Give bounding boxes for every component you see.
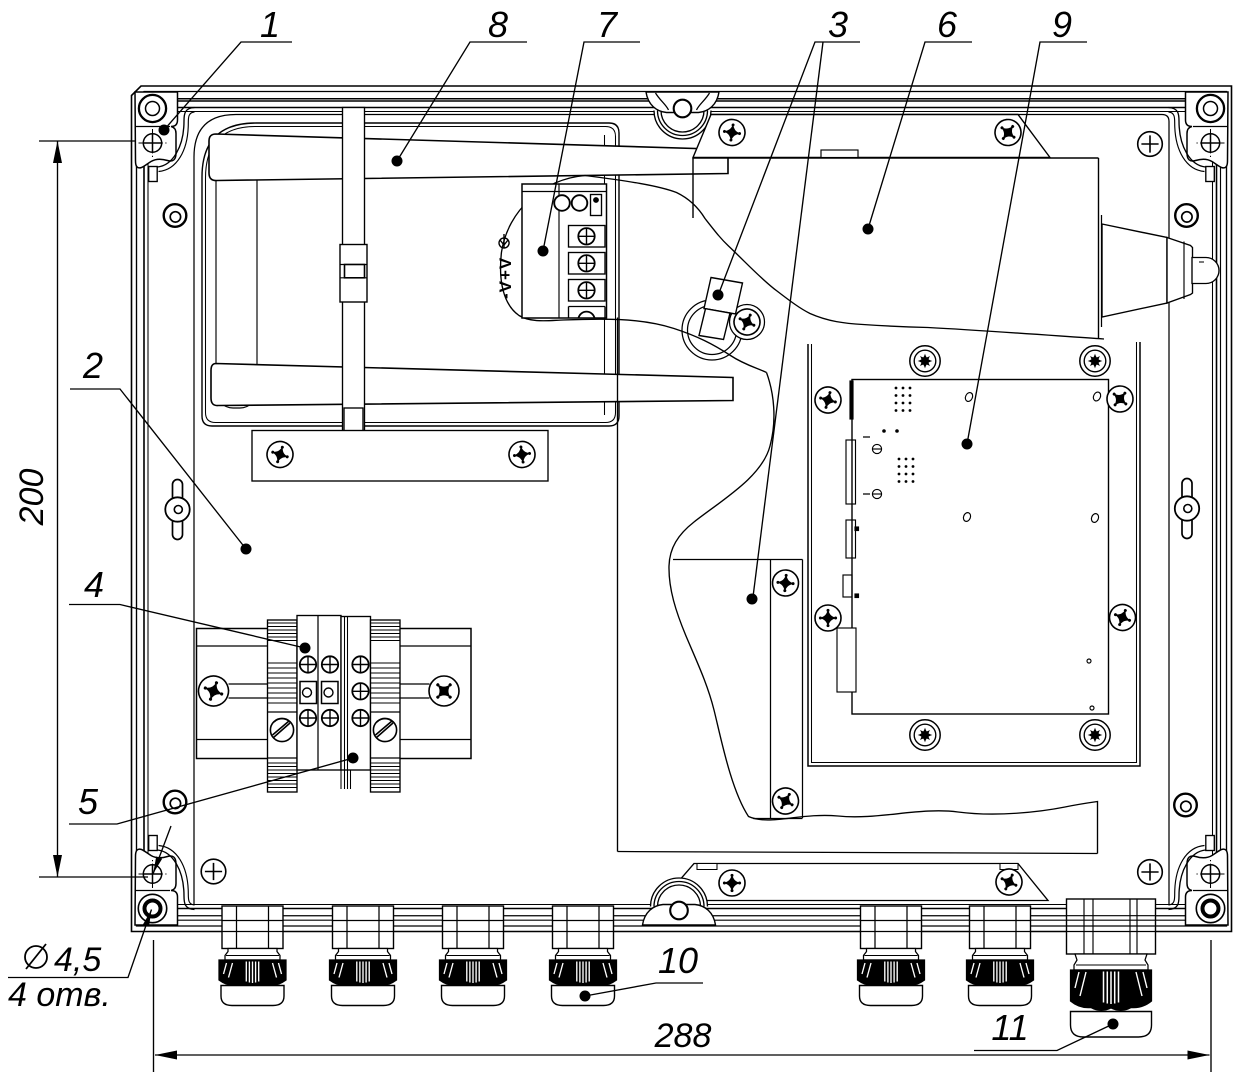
svg-text:4: 4 bbox=[84, 564, 104, 605]
svg-text:5: 5 bbox=[78, 781, 99, 822]
svg-text:7: 7 bbox=[597, 4, 619, 45]
svg-text:10: 10 bbox=[658, 940, 698, 981]
svg-text:2: 2 bbox=[82, 345, 103, 386]
svg-text:8: 8 bbox=[488, 4, 508, 45]
svg-text:4 отв.: 4 отв. bbox=[8, 976, 111, 1014]
svg-text:11: 11 bbox=[991, 1007, 1028, 1048]
svg-text:200: 200 bbox=[13, 469, 51, 527]
svg-text:3: 3 bbox=[828, 4, 848, 45]
svg-text:9: 9 bbox=[1052, 4, 1072, 45]
svg-text:1: 1 bbox=[260, 4, 280, 45]
svg-text:6: 6 bbox=[937, 4, 958, 45]
svg-text:4,5: 4,5 bbox=[54, 941, 101, 979]
svg-text:288: 288 bbox=[654, 1017, 712, 1055]
svg-text:-V+V: -V+V bbox=[496, 257, 515, 299]
